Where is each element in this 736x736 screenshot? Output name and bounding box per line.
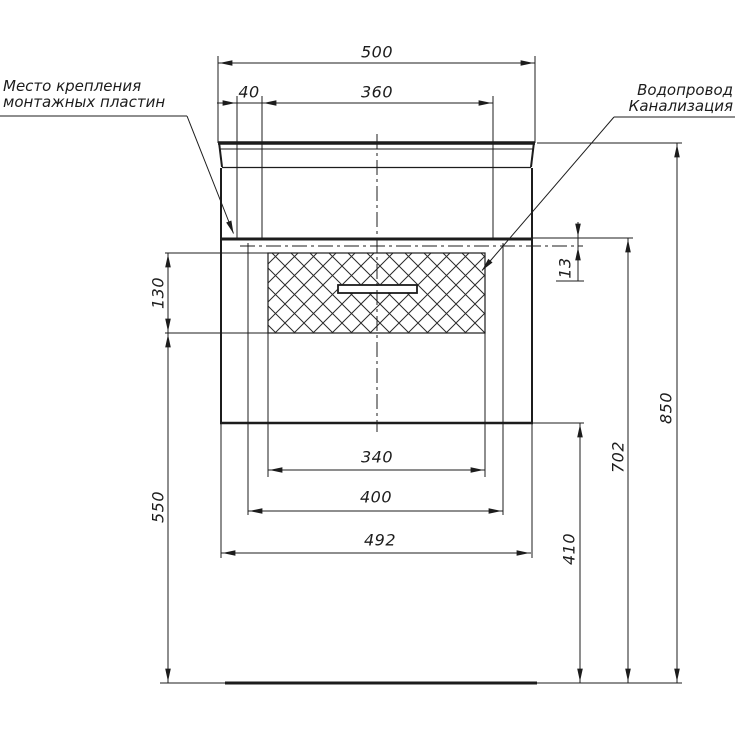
dim-inner-width-label: 400: [360, 488, 392, 507]
note-line: монтажных пластин: [3, 94, 165, 110]
utilities-note-leader: [482, 117, 735, 271]
dim-total-height-label: 850: [657, 392, 676, 424]
dim-mount-height-label: 702: [609, 441, 628, 473]
dim-drawer-width-label: 340: [361, 448, 393, 467]
dim-plate-spacing-label: 360: [361, 83, 393, 102]
dim-top-width-label: 500: [361, 43, 393, 62]
dim-bottom-height-label: 550: [149, 491, 168, 523]
leader-lines: [0, 116, 735, 271]
dim-axis-offset-label: 13: [556, 257, 575, 278]
dim-cabinet-width-label: 492: [364, 531, 396, 550]
dimension-lines: [168, 63, 677, 683]
note-line: Место крепления: [3, 78, 165, 94]
note-line: Водопровод: [629, 82, 733, 98]
dim-drawer-height-label: 130: [149, 277, 168, 309]
utilities-note: Водопровод Канализация: [629, 82, 733, 114]
mounting-note-leader: [0, 116, 234, 234]
dim-plate-width-label: 40: [238, 83, 259, 102]
dim-floor-clearance-label: 410: [560, 533, 579, 565]
note-line: Канализация: [629, 98, 733, 114]
technical-drawing: Место крепления монтажных пластин Водопр…: [0, 0, 736, 736]
mounting-plates-note: Место крепления монтажных пластин: [3, 78, 165, 110]
